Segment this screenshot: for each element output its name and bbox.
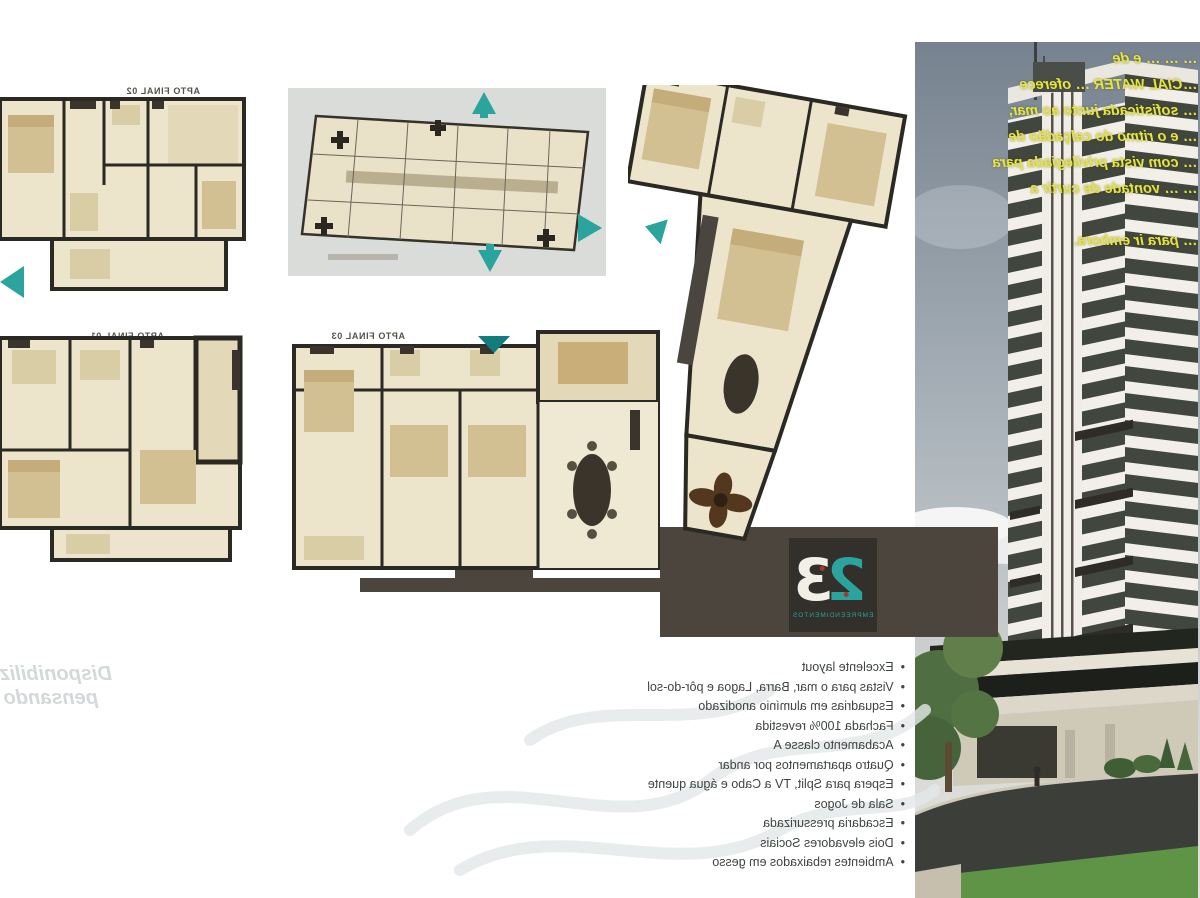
promo-line: …CIAL WATER … oferece [915, 72, 1197, 98]
feature-item: Escadaria pressurizada [605, 814, 905, 834]
key-plan [288, 88, 606, 281]
building-render: … … … e de …CIAL WATER … oferece … sofis… [915, 42, 1200, 898]
feature-item: Acabamento classe A [605, 736, 905, 756]
promo-line [915, 202, 1197, 228]
floor-plan-apto-03 [290, 330, 665, 597]
floor-plan-apto-01 [0, 330, 248, 570]
direction-arrow-icon [478, 336, 510, 358]
logo-caption: EMPREENDIMENTOS [792, 612, 873, 619]
feature-item: Ambientes rebaixados em gesso [605, 853, 905, 873]
feature-item: Dois elevadores Sociais [605, 834, 905, 854]
feature-item: Vistas para o mar, Barra, Lagoa e pôr-do… [605, 678, 905, 698]
promo-line: … … … e de [915, 46, 1197, 72]
promo-line: … sofisticada junto ao mar, [915, 98, 1197, 124]
direction-arrow-icon [0, 266, 24, 303]
feature-item: Fachada 100% revestida [605, 717, 905, 737]
watermark-slogan: Disponibilizando ca pensando em você e [0, 662, 112, 710]
promo-line: … e o ritmo do calçadão de [915, 124, 1197, 150]
watermark-line: Disponibilizando ca [0, 662, 112, 686]
logo-digits: 23 [800, 546, 867, 614]
promo-line: … para ir embora. [915, 228, 1197, 254]
promo-line: … … vontade de curtir a [915, 176, 1197, 202]
promo-line: … com vista privilegiada para [915, 150, 1197, 176]
feature-item: Espera para Split, TV a Cabo e água quen… [605, 775, 905, 795]
floor-plan-apto-02 [0, 85, 248, 300]
feature-item: Quatro apartamentos por andar [605, 756, 905, 776]
watermark-line: pensando em você e [0, 686, 98, 710]
features-list: Excelente layout Vistas para o mar, Barr… [605, 658, 905, 873]
promo-text: … … … e de …CIAL WATER … oferece … sofis… [915, 46, 1197, 254]
feature-item: Excelente layout [605, 658, 905, 678]
feature-item: Sala de Jogos [605, 795, 905, 815]
floor-plan-apto-06 [628, 85, 913, 568]
brand-logo: 23 EMPREENDIMENTOS [789, 538, 877, 632]
feature-item: Esquadrias em alumínio anodizado [605, 697, 905, 717]
brochure-page: … … … e de …CIAL WATER … oferece … sofis… [0, 0, 1200, 898]
